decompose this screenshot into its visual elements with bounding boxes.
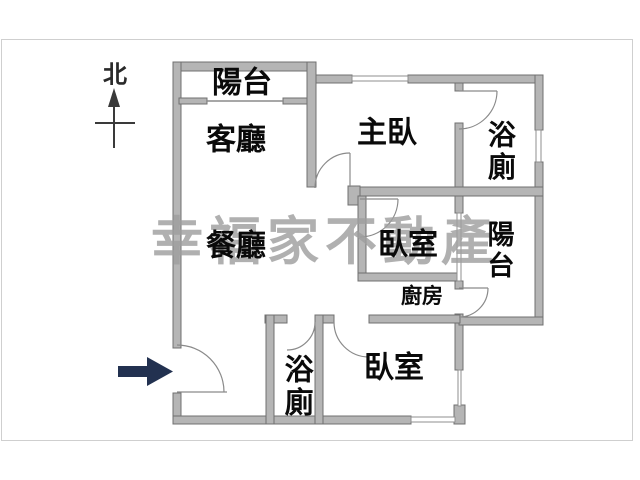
room-label-balcony-top: 陽台: [212, 67, 272, 99]
room-label-bathroom-top: 浴廁: [481, 120, 519, 184]
room-label-kitchen: 廚房: [401, 286, 443, 308]
floorplan-image: 北: [0, 0, 640, 480]
room-label-bedroom-middle: 臥室: [378, 229, 438, 261]
room-label-master-bedroom: 主臥: [357, 117, 417, 149]
room-label-dining-room: 餐廳: [206, 230, 266, 262]
room-label-balcony-right: 陽台: [482, 220, 513, 282]
watermark-text: 幸福家不動產: [151, 200, 499, 275]
entry-arrow-icon: [118, 357, 173, 386]
room-label-bathroom-bottom: 浴廁: [278, 354, 314, 420]
compass-north-label: 北: [103, 55, 127, 90]
compass-icon: [95, 88, 135, 148]
room-label-living-room: 客廳: [206, 124, 266, 156]
room-label-bedroom-bottom: 臥室: [364, 352, 424, 384]
